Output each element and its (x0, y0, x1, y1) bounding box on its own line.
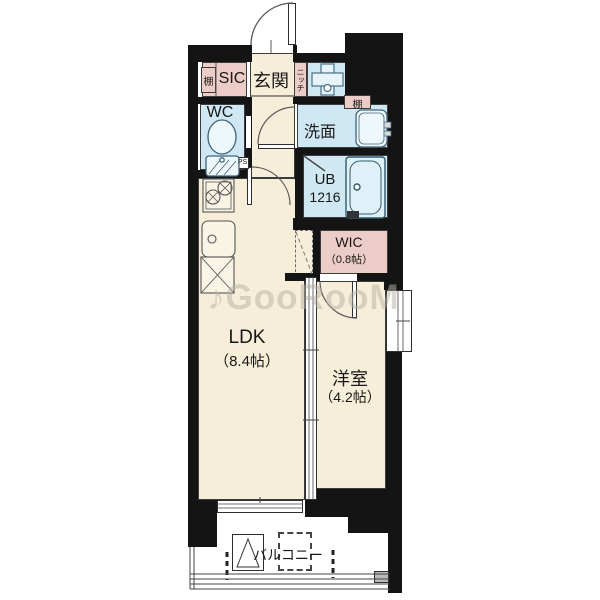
wall-wic-left (313, 230, 320, 274)
wall-wc-bottom (188, 170, 252, 178)
wall-topright-mass (345, 33, 403, 97)
label-ldk-area: （8.4帖） (214, 350, 280, 371)
label-wic: WIC (330, 234, 368, 250)
label-shelf-washroom: 棚 (344, 96, 371, 111)
ldk-door-leaf (247, 167, 252, 205)
label-unit-bath-size: 1216 (306, 189, 344, 205)
wall-bottomright-mass (348, 490, 402, 533)
wall-washroom-bath (295, 148, 390, 155)
label-balcony: バルコニー (243, 545, 333, 565)
hall-storage-nook (295, 230, 313, 277)
watermark: ♪GooRooM (207, 278, 400, 318)
wall-hall-bath (295, 155, 303, 223)
label-sic: SIC (214, 70, 250, 88)
label-ps: PS (236, 159, 249, 166)
wc-door-opening (246, 116, 251, 148)
label-wc: WC (204, 104, 236, 122)
wall-left-balcony-corner (188, 500, 217, 547)
washroom-door-leaf (258, 144, 295, 149)
floorplan: 棚 SIC 玄関 ニッチ WC PS 洗面 棚 UB 1216 WIC （0.8… (0, 0, 600, 600)
label-western-room-area: （4.2帖） (317, 387, 383, 407)
label-genkan: 玄関 (248, 67, 294, 93)
label-washroom: 洗面 (302, 118, 338, 142)
label-unit-bath: UB (308, 171, 342, 188)
wall-laundry-bottom (293, 97, 390, 104)
wall-left-outer (188, 45, 198, 505)
wall-balcony-right (388, 533, 402, 593)
wall-bath-bottom (293, 218, 390, 230)
laundry-nook (307, 62, 347, 97)
wall-laundry-top (296, 53, 347, 62)
drain-box (374, 571, 389, 583)
label-ldk: LDK (225, 327, 269, 349)
ldk-balcony-window (217, 500, 303, 513)
wall-right-upper (388, 97, 403, 277)
wall-top-left (188, 45, 252, 62)
entrance-door-icon (251, 3, 293, 45)
wall-under-sic (198, 97, 252, 104)
wall-western-right-lower (386, 352, 402, 490)
label-wic-area: （0.8帖） (321, 251, 377, 267)
label-niche: ニッチ (295, 64, 306, 96)
entrance-door-leaf (288, 3, 296, 45)
